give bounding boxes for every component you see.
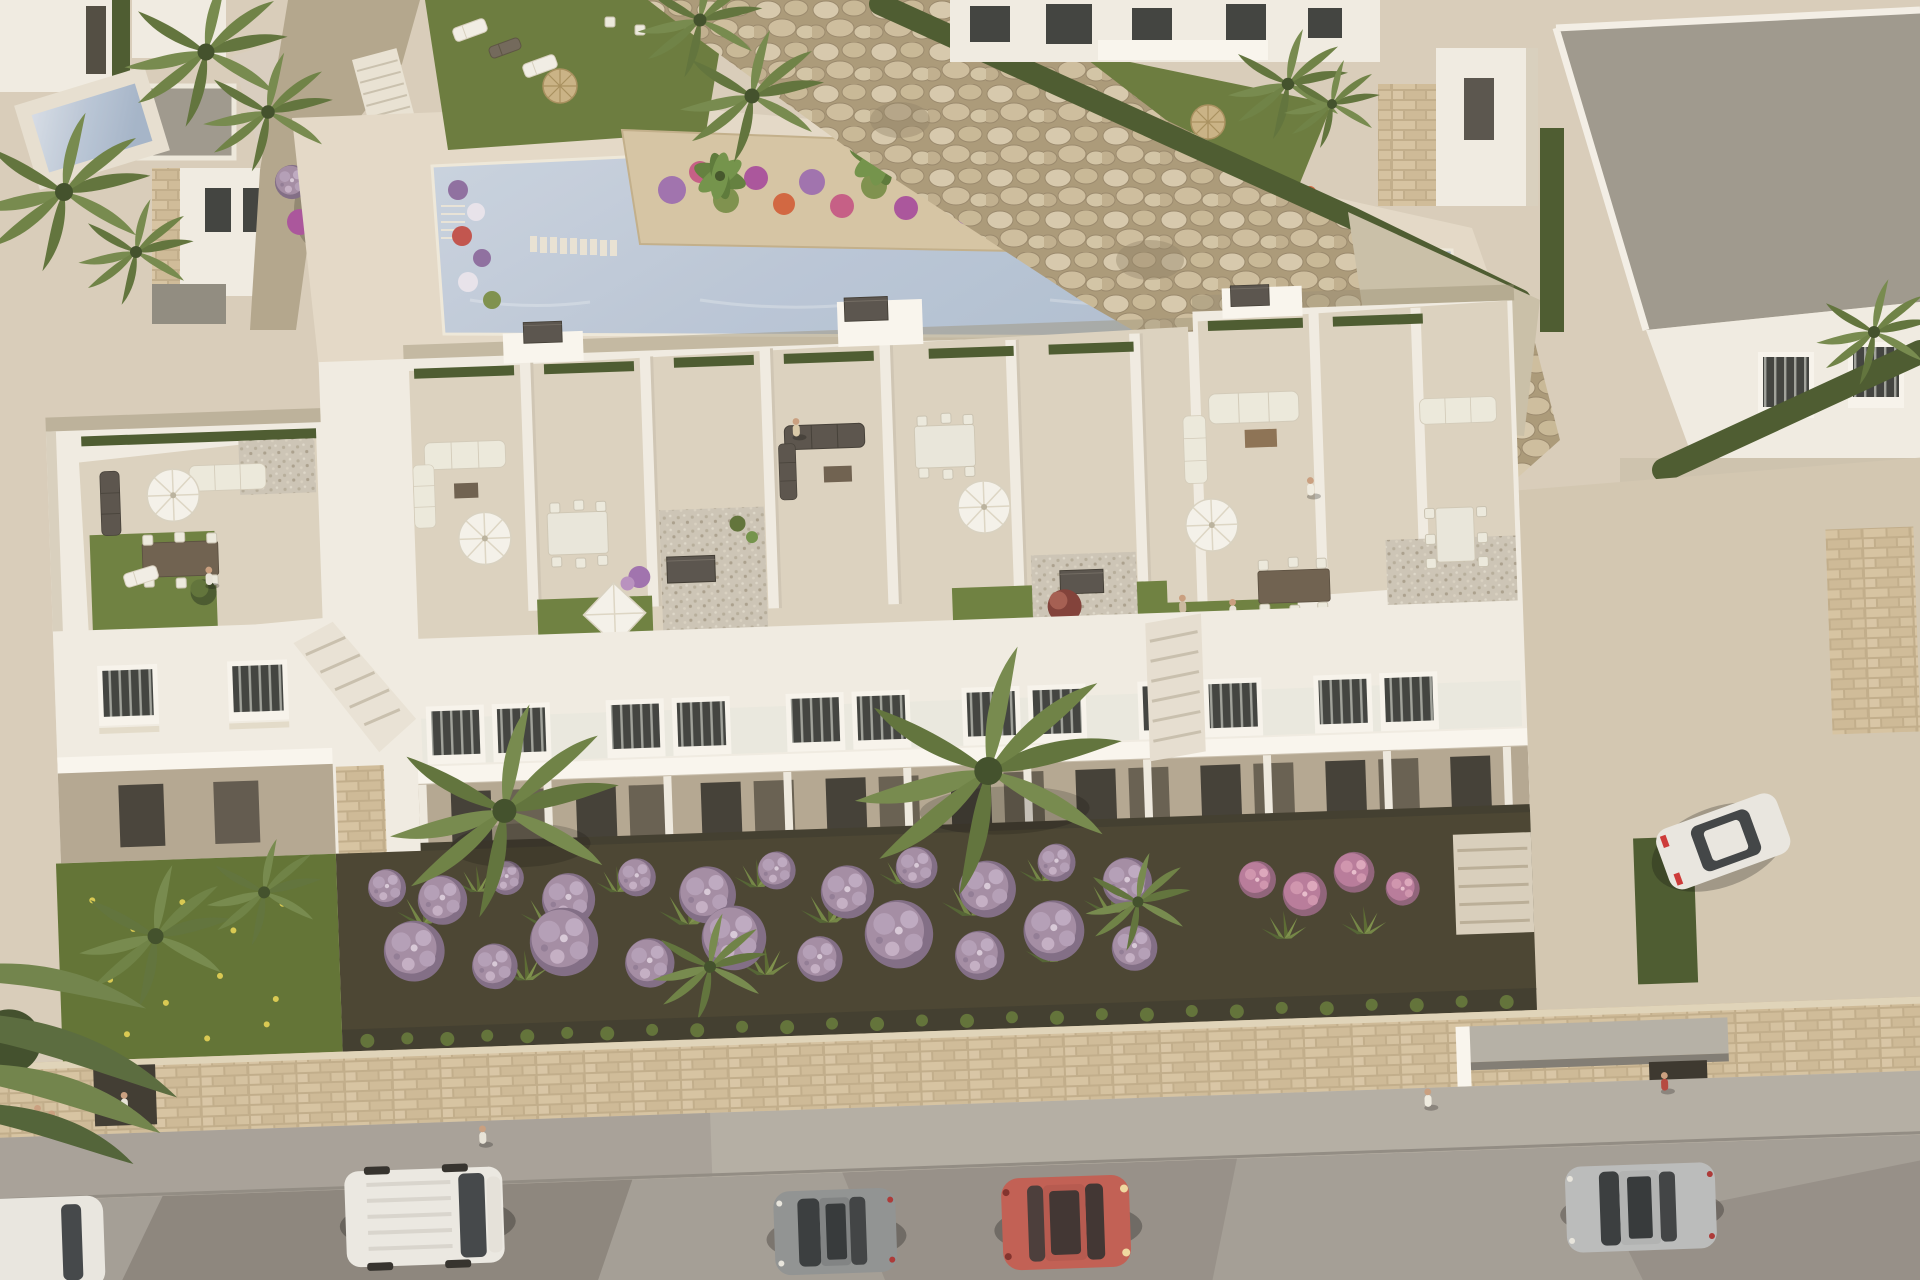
aerial-render [0,0,1920,1280]
light-grade-overlay [0,0,1920,1280]
render-canvas [0,0,1920,1280]
